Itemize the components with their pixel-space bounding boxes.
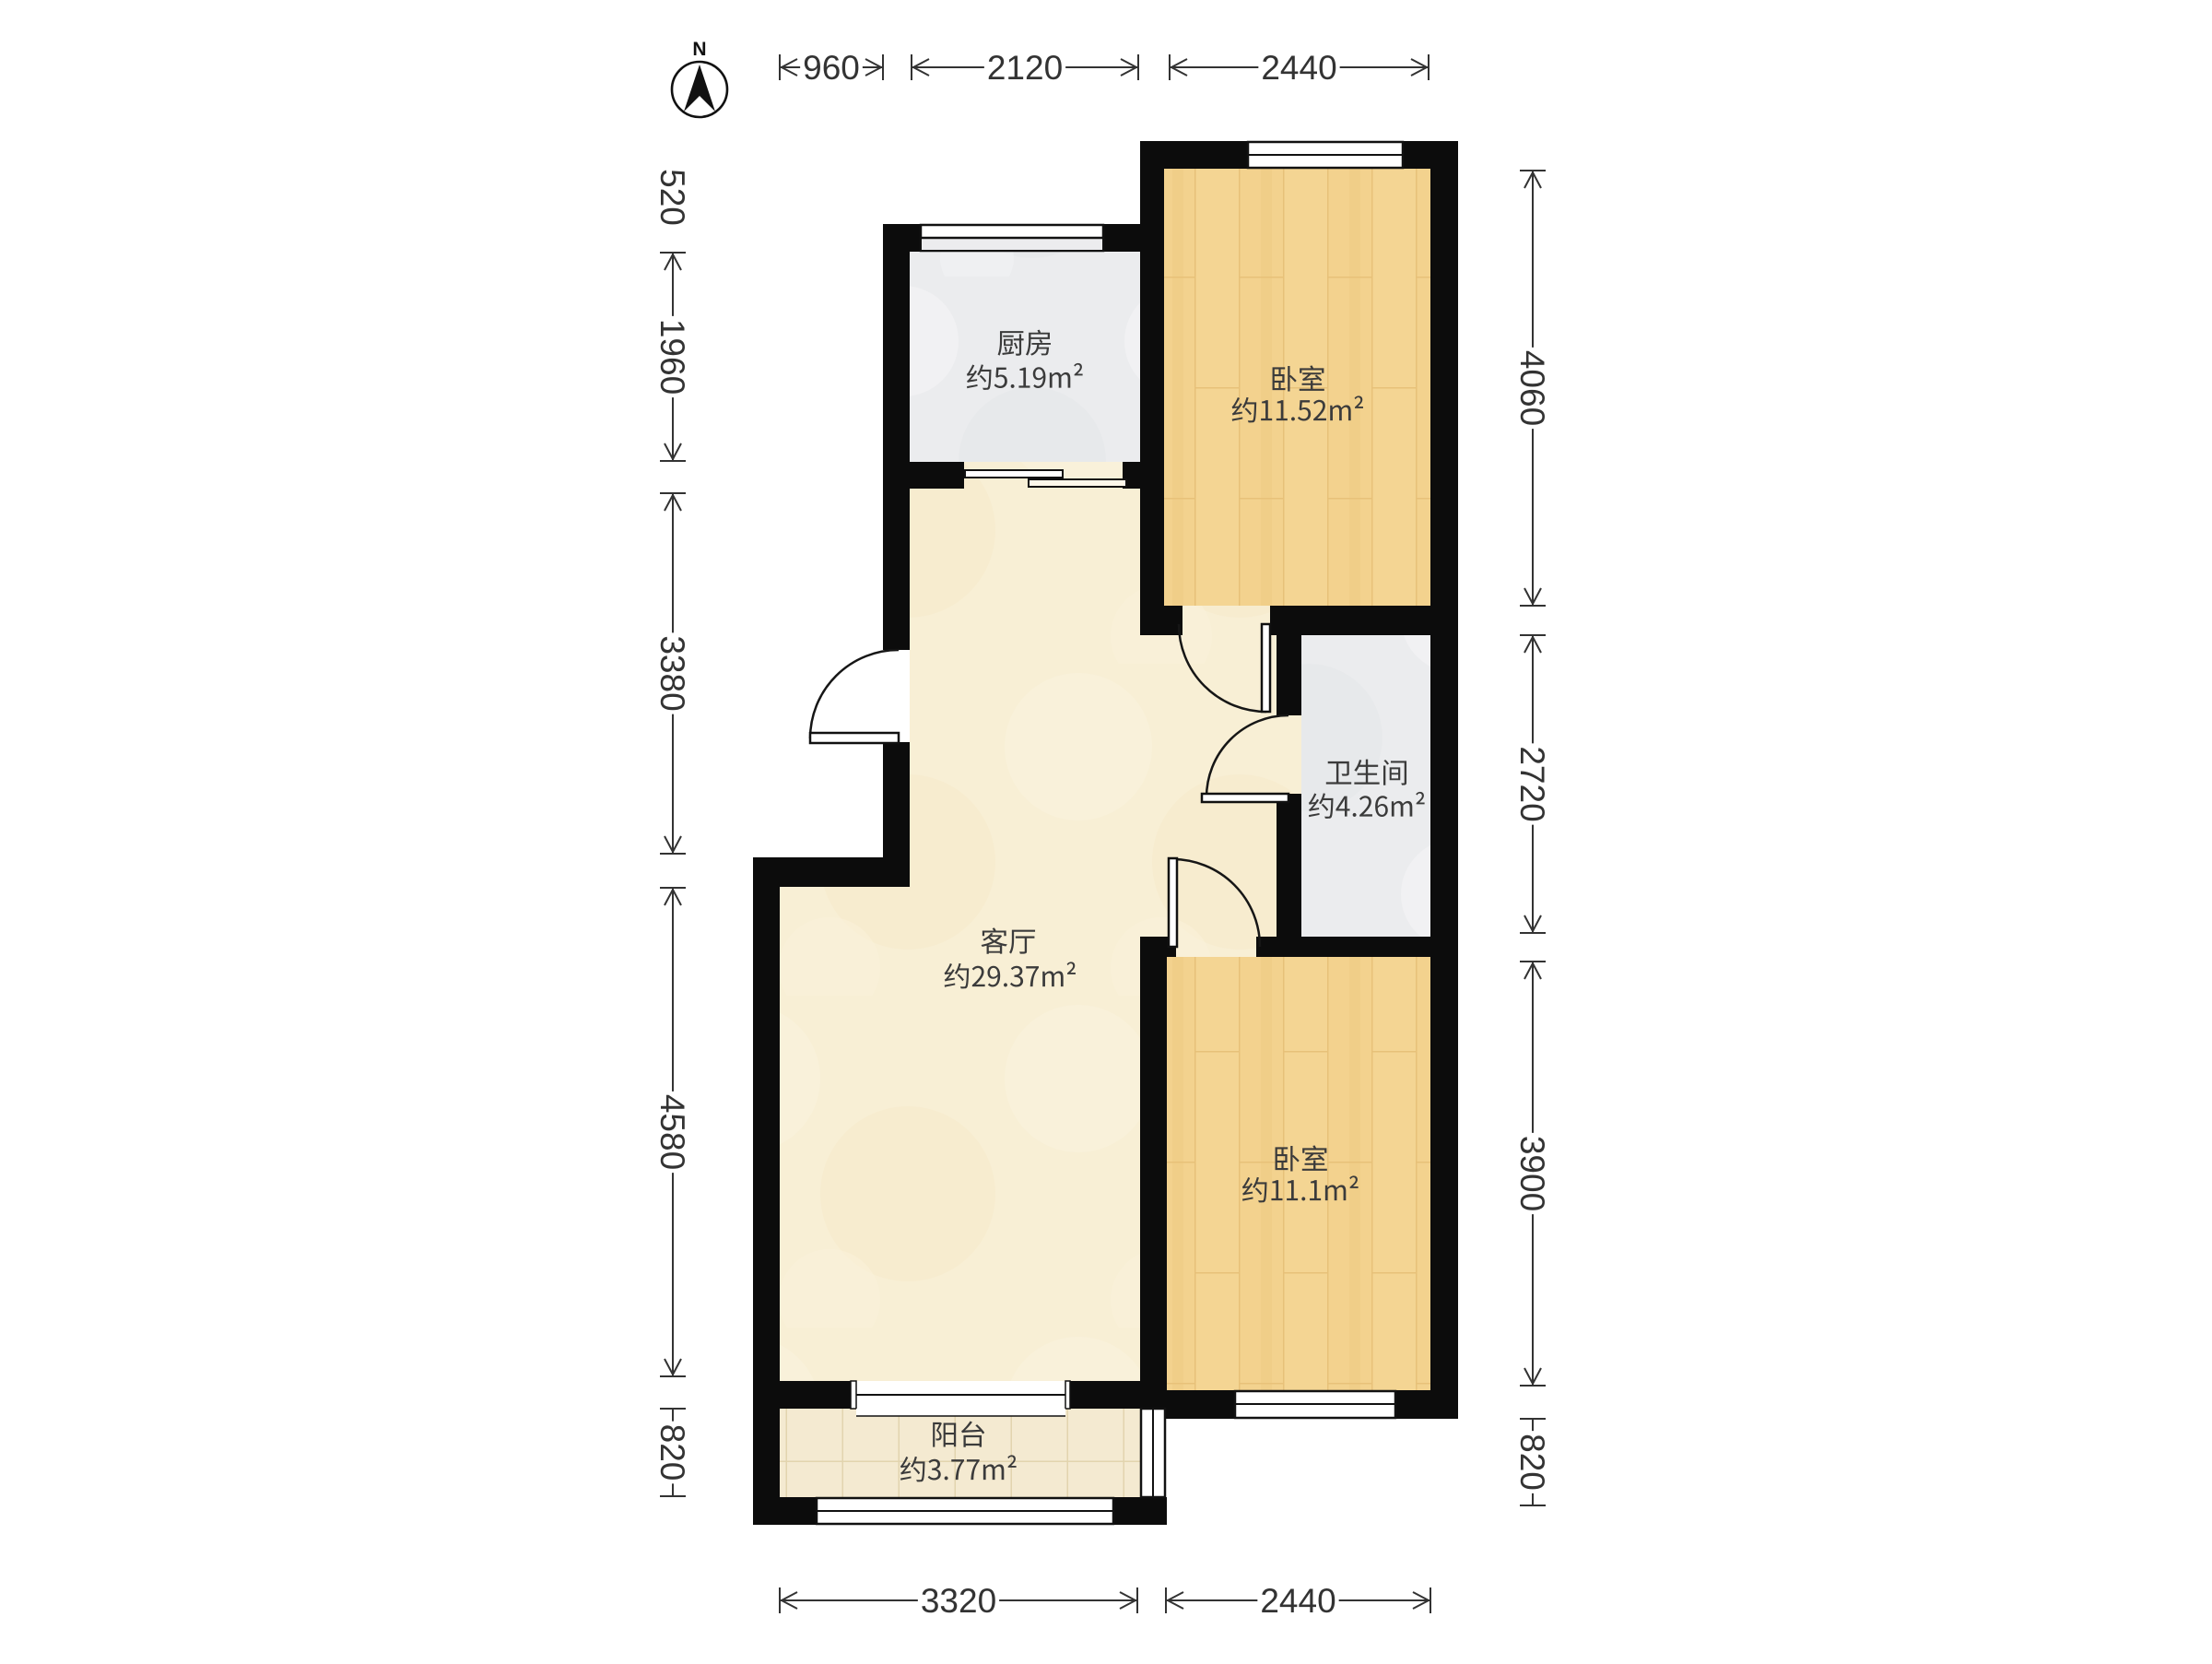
svg-text:2720: 2720 [1513, 746, 1551, 821]
svg-text:520: 520 [653, 169, 691, 226]
svg-text:820: 820 [653, 1424, 691, 1481]
svg-text:3320: 3320 [921, 1582, 996, 1620]
svg-text:4060: 4060 [1513, 350, 1551, 426]
svg-text:1960: 1960 [653, 319, 691, 395]
svg-text:960: 960 [803, 49, 860, 87]
svg-text:3900: 3900 [1513, 1136, 1551, 1211]
svg-text:2440: 2440 [1261, 49, 1336, 87]
svg-text:2120: 2120 [987, 49, 1063, 87]
svg-text:N: N [692, 39, 706, 60]
svg-text:2440: 2440 [1260, 1582, 1335, 1620]
svg-text:4580: 4580 [653, 1094, 691, 1170]
svg-text:820: 820 [1513, 1434, 1551, 1491]
svg-text:3380: 3380 [653, 635, 691, 711]
